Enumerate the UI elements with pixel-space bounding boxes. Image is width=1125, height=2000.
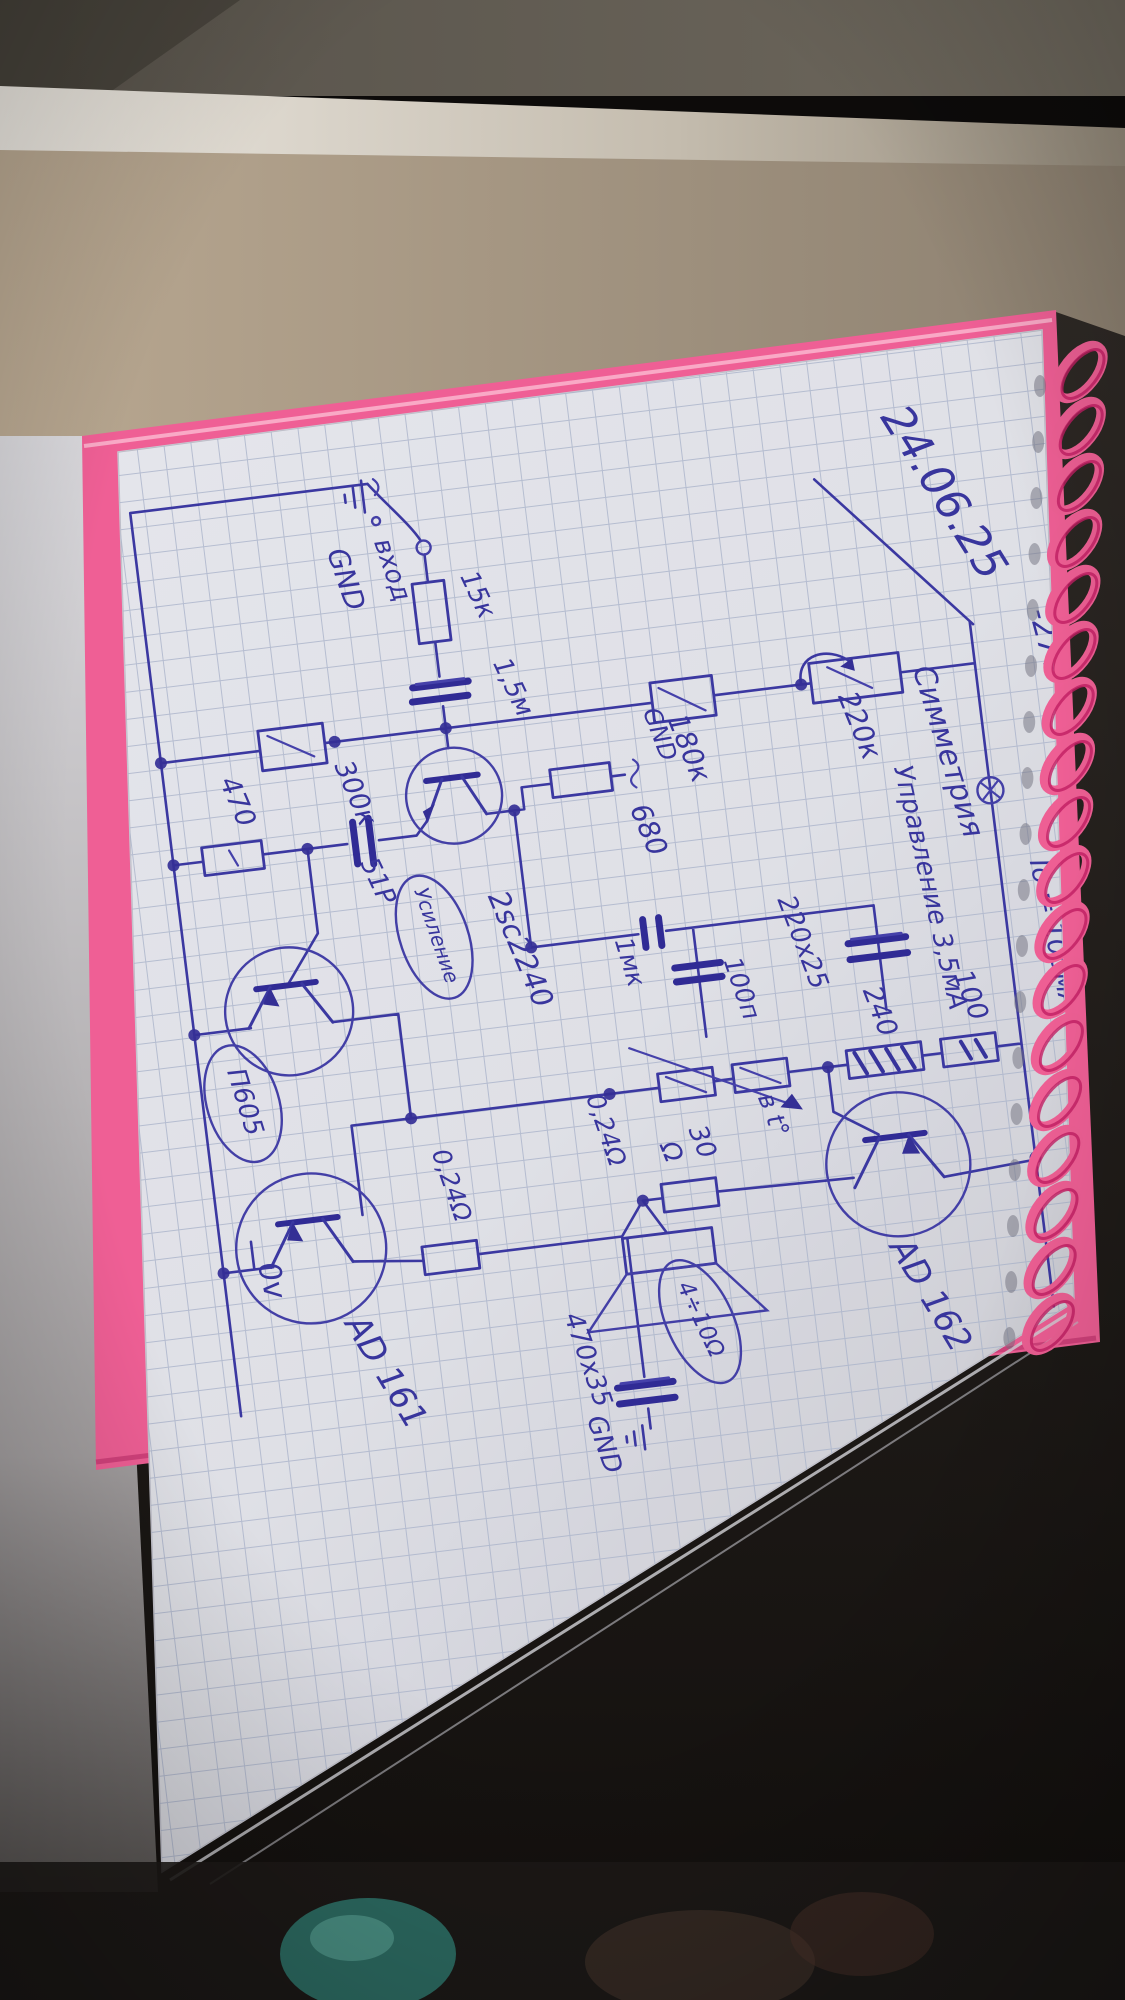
- photo-of-notebook-schematic: 24.06.25 Симметрия -27v Iо = 100мА Управ…: [0, 0, 1125, 2000]
- photo-canvas: 24.06.25 Симметрия -27v Iо = 100мА Управ…: [0, 0, 1125, 2000]
- photo-vignette: [0, 0, 1125, 2000]
